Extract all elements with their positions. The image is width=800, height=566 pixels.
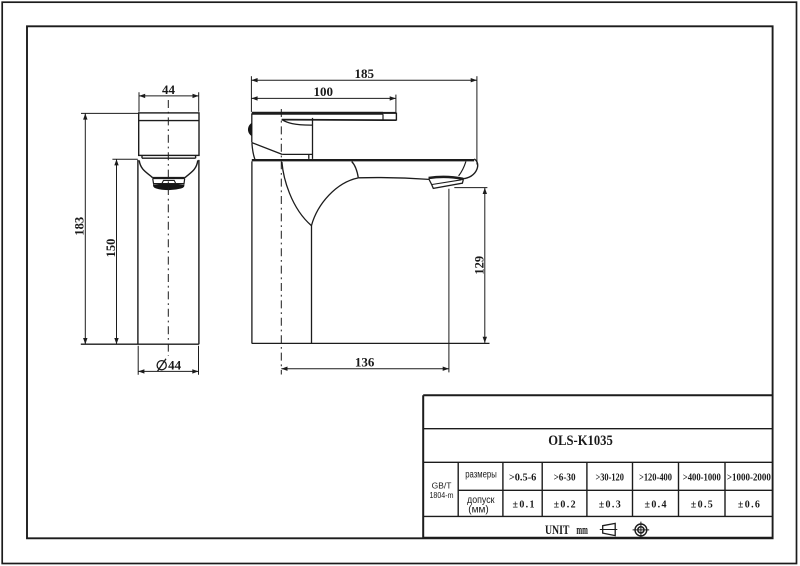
svg-text:±0.5: ±0.5 [691, 500, 713, 511]
svg-text:1804-m: 1804-m [430, 490, 454, 500]
svg-text:183: 183 [72, 217, 86, 236]
svg-text:>120-400: >120-400 [639, 473, 672, 484]
svg-text:(мм): (мм) [468, 504, 489, 515]
svg-text:>0.5-6: >0.5-6 [509, 473, 537, 484]
svg-text:150: 150 [104, 239, 118, 258]
svg-text:UNIT: UNIT [545, 522, 570, 537]
svg-text:>1000-2000: >1000-2000 [727, 473, 771, 484]
svg-text:±0.4: ±0.4 [645, 500, 667, 511]
svg-text:136: 136 [355, 354, 375, 369]
svg-text:±0.2: ±0.2 [554, 500, 576, 511]
svg-text:mm: mm [576, 522, 588, 537]
svg-text:±0.3: ±0.3 [599, 500, 621, 511]
svg-text:±0.1: ±0.1 [513, 500, 535, 511]
svg-text:>400-1000: >400-1000 [683, 473, 721, 484]
svg-text:100: 100 [314, 84, 334, 99]
svg-text:размеры: размеры [465, 469, 497, 480]
svg-text:185: 185 [354, 66, 374, 81]
svg-text:>6-30: >6-30 [554, 473, 576, 484]
svg-text:OLS-K1035: OLS-K1035 [548, 433, 613, 449]
svg-text:129: 129 [473, 256, 487, 275]
svg-text:44: 44 [162, 82, 176, 97]
svg-text:44: 44 [168, 357, 182, 372]
svg-text:>30-120: >30-120 [595, 473, 624, 484]
svg-text:±0.6: ±0.6 [738, 500, 760, 511]
svg-text:GB/T: GB/T [432, 481, 452, 491]
